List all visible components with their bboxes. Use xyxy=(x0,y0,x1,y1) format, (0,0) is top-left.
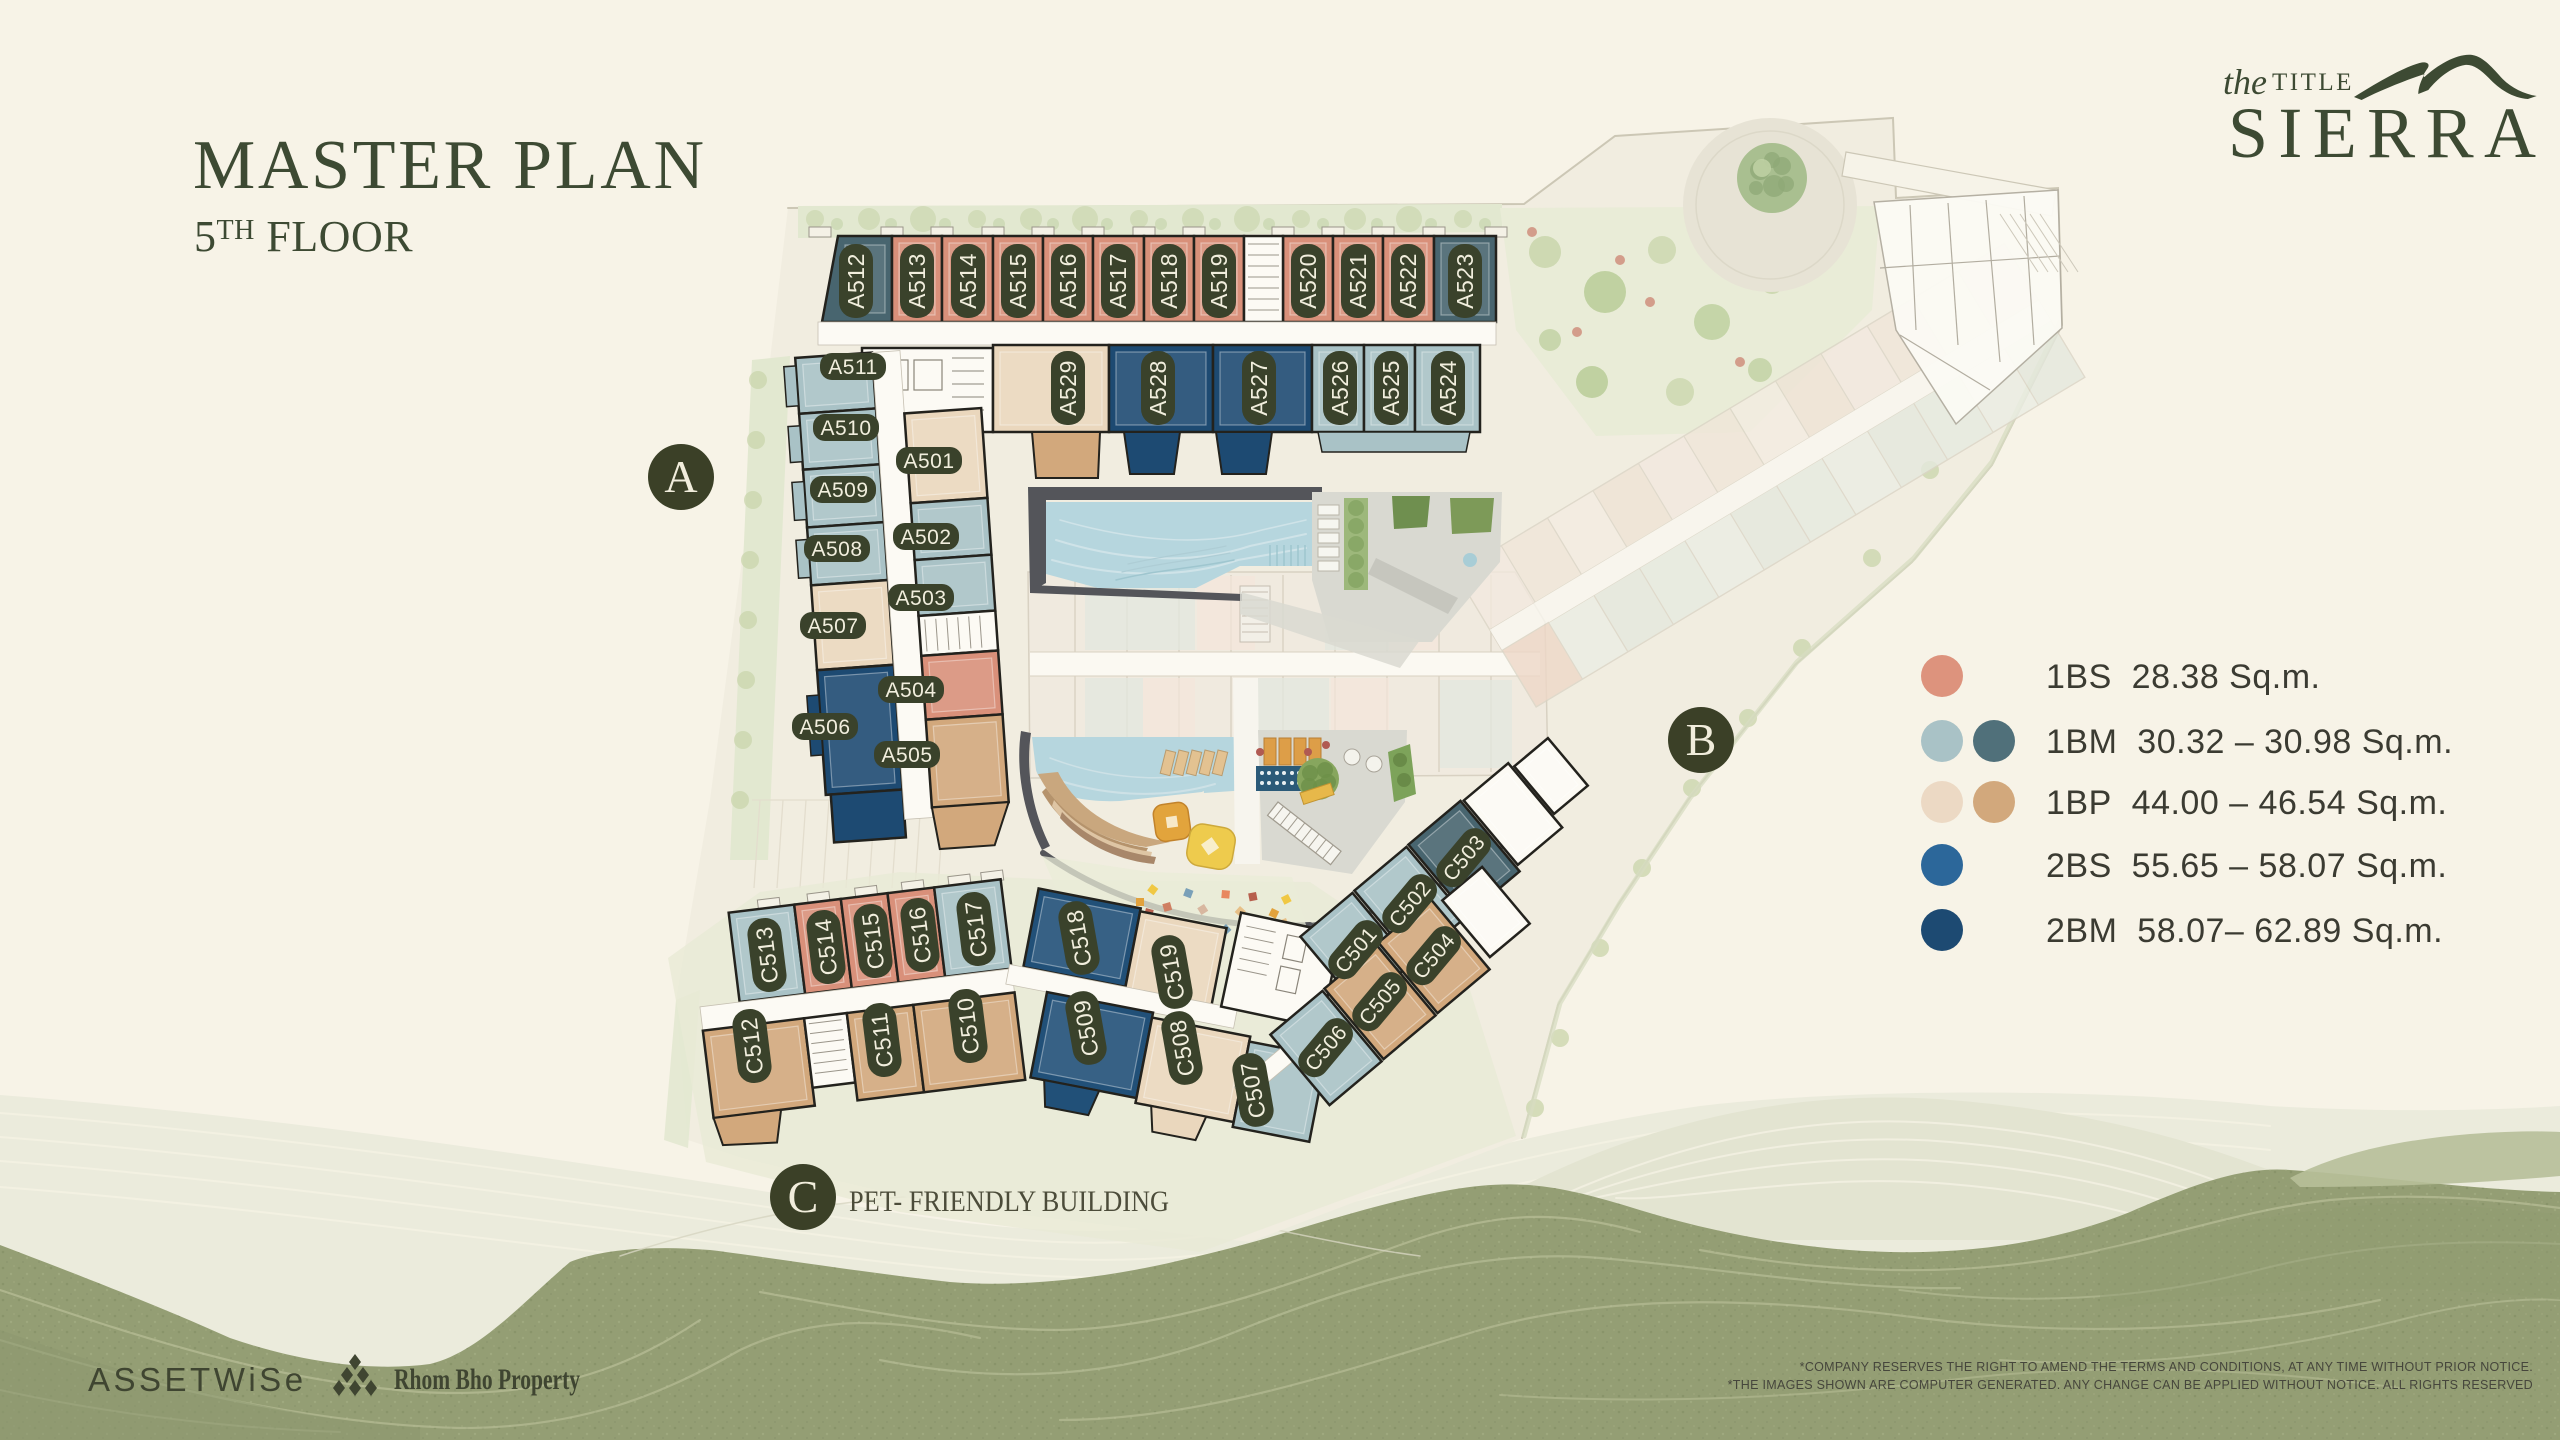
svg-text:A515: A515 xyxy=(1005,253,1031,309)
svg-text:A514: A514 xyxy=(955,253,981,309)
svg-text:A516: A516 xyxy=(1055,253,1081,309)
svg-text:A501: A501 xyxy=(903,450,954,473)
svg-text:A525: A525 xyxy=(1378,360,1404,416)
svg-text:A502: A502 xyxy=(900,526,951,549)
svg-text:ASSETWiSe: ASSETWiSe xyxy=(88,1361,307,1398)
svg-text:A529: A529 xyxy=(1055,360,1081,416)
svg-text:A520: A520 xyxy=(1295,253,1321,309)
svg-text:A527: A527 xyxy=(1246,360,1272,416)
svg-text:A510: A510 xyxy=(820,417,871,440)
svg-text:Rhom Bho Property: Rhom Bho Property xyxy=(394,1363,580,1396)
svg-text:A513: A513 xyxy=(904,253,930,309)
svg-text:A504: A504 xyxy=(885,679,936,702)
svg-text:1BS 28.38 Sq.m.: 1BS 28.38 Sq.m. xyxy=(2046,658,2321,696)
svg-text:A509: A509 xyxy=(817,479,868,502)
svg-text:MASTER PLAN: MASTER PLAN xyxy=(193,127,705,204)
svg-text:2BS 55.65 – 58.07 Sq.m.: 2BS 55.65 – 58.07 Sq.m. xyxy=(2046,847,2447,885)
svg-text:TITLE: TITLE xyxy=(2272,69,2354,96)
svg-text:A503: A503 xyxy=(895,587,946,610)
svg-text:*COMPANY RESERVES THE RIGHT TO: *COMPANY RESERVES THE RIGHT TO AMEND THE… xyxy=(1800,1360,2533,1374)
svg-text:A524: A524 xyxy=(1435,360,1461,416)
svg-text:A512: A512 xyxy=(843,253,869,309)
svg-text:1BP 44.00 – 46.54 Sq.m.: 1BP 44.00 – 46.54 Sq.m. xyxy=(2046,784,2447,822)
svg-text:A508: A508 xyxy=(811,538,862,561)
svg-text:1BM 30.32 – 30.98 Sq.m.: 1BM 30.32 – 30.98 Sq.m. xyxy=(2046,723,2453,761)
svg-text:A506: A506 xyxy=(799,716,850,739)
svg-text:A519: A519 xyxy=(1206,253,1232,309)
svg-text:A522: A522 xyxy=(1395,253,1421,309)
svg-text:A511: A511 xyxy=(828,356,878,379)
svg-text:C: C xyxy=(788,1171,819,1222)
svg-text:A523: A523 xyxy=(1452,253,1478,309)
svg-text:A: A xyxy=(664,451,697,502)
svg-text:A505: A505 xyxy=(881,744,932,767)
svg-text:A518: A518 xyxy=(1156,253,1182,309)
svg-text:PET- FRIENDLY BUILDING: PET- FRIENDLY BUILDING xyxy=(849,1185,1169,1218)
svg-text:A528: A528 xyxy=(1145,360,1171,416)
svg-text:*THE IMAGES SHOWN ARE COMPUTER: *THE IMAGES SHOWN ARE COMPUTER GENERATED… xyxy=(1728,1378,2533,1392)
svg-text:A526: A526 xyxy=(1327,360,1353,416)
svg-text:A521: A521 xyxy=(1345,253,1371,309)
svg-text:A507: A507 xyxy=(807,615,858,638)
svg-text:2BM 58.07– 62.89 Sq.m.: 2BM 58.07– 62.89 Sq.m. xyxy=(2046,912,2443,950)
svg-text:B: B xyxy=(1686,714,1717,765)
svg-text:A517: A517 xyxy=(1105,253,1131,309)
